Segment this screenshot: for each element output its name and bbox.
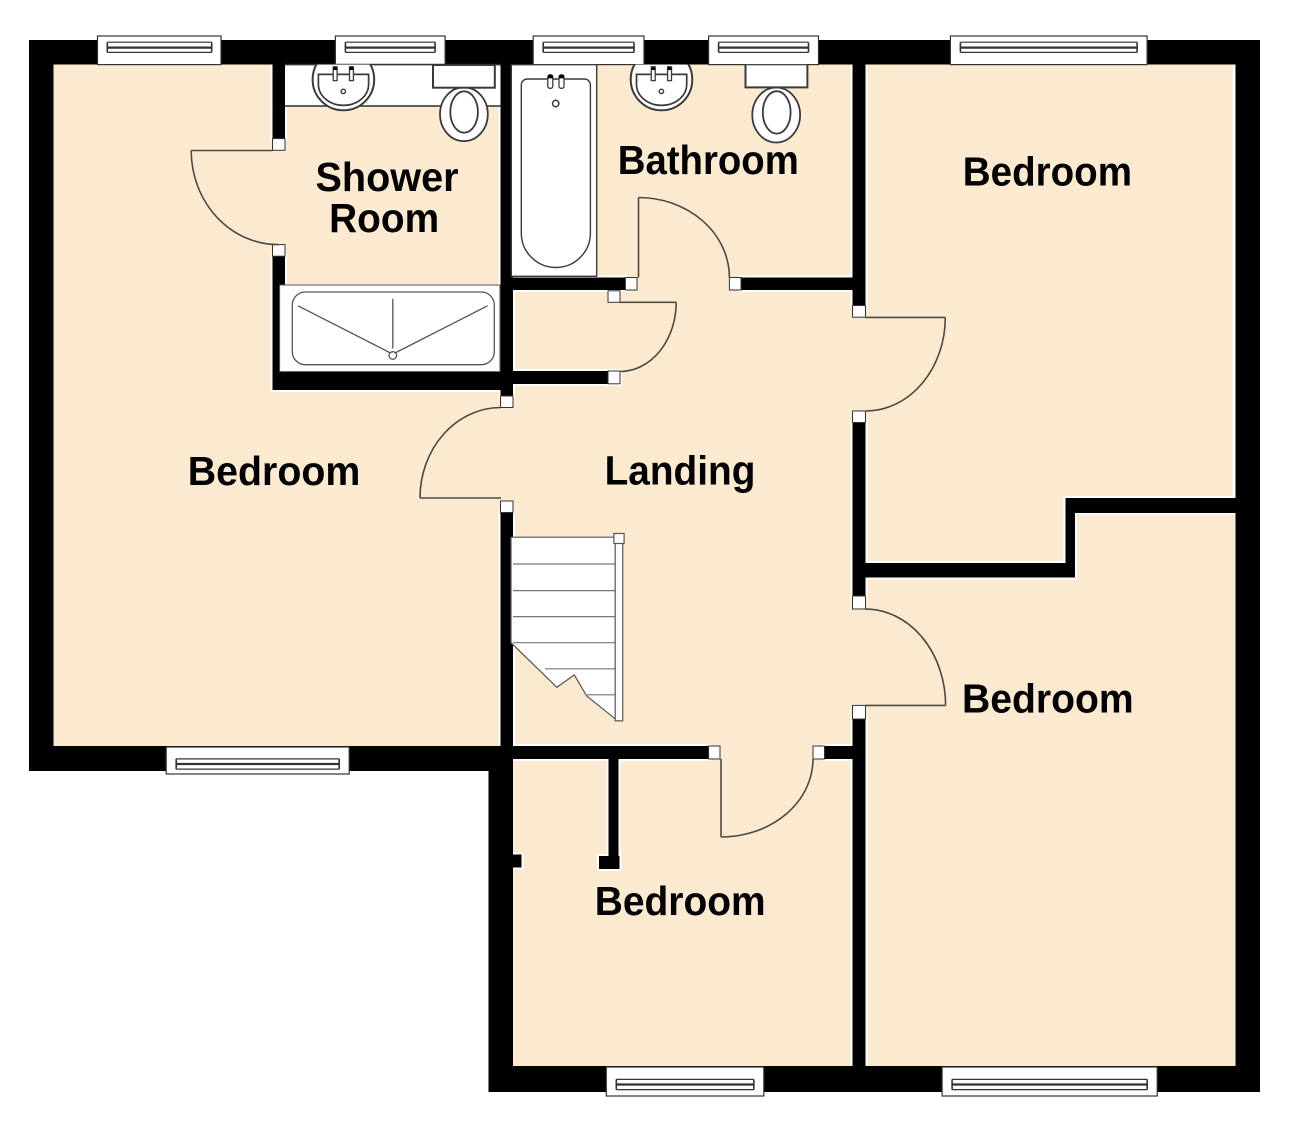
svg-text:Room: Room [329,195,439,241]
svg-text:Bedroom: Bedroom [962,675,1134,721]
svg-text:Bedroom: Bedroom [595,878,766,924]
svg-text:Bedroom: Bedroom [188,448,360,494]
svg-text:Bedroom: Bedroom [963,149,1132,195]
svg-text:Landing: Landing [605,448,756,494]
svg-text:Shower: Shower [316,154,459,200]
svg-text:Bathroom: Bathroom [618,137,799,183]
